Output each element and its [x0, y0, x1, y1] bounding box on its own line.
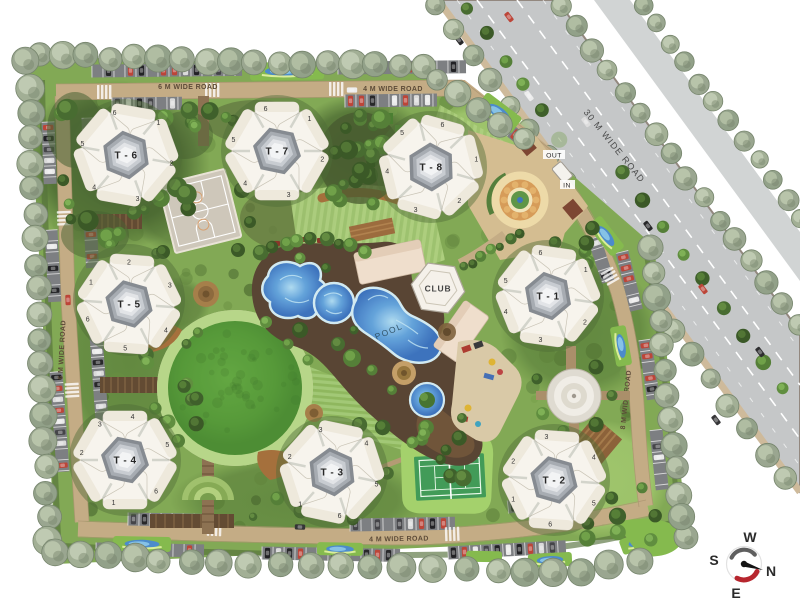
svg-text:N: N: [766, 563, 776, 579]
svg-text:S: S: [709, 552, 718, 568]
svg-text:W: W: [743, 529, 757, 545]
svg-text:E: E: [731, 585, 740, 601]
